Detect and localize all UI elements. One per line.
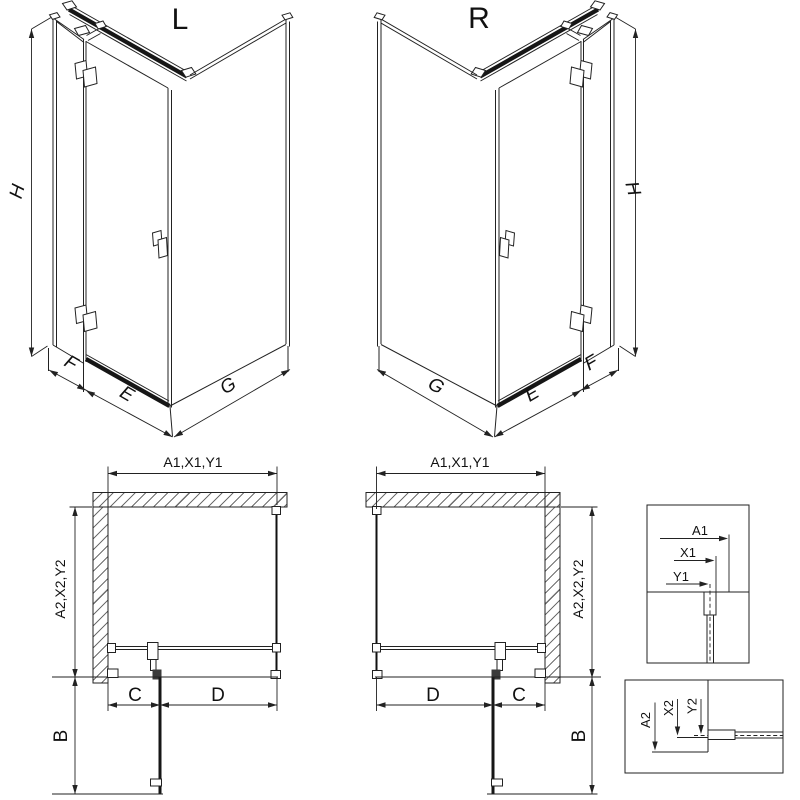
detail-y1-label: Y1	[673, 569, 689, 584]
plan-view-right: A1,X1,Y1 A2,X2,Y2 D C B	[366, 454, 601, 794]
plan-view-left: A1,X1,Y1 A2,X2,Y2 C D B	[51, 454, 287, 794]
dim-label-h-left: H	[6, 182, 30, 201]
iso-right-title: R	[468, 2, 490, 35]
detail-a1-label: A1	[692, 523, 708, 538]
plan-right-b-label: B	[569, 730, 590, 743]
plan-right-width-label: A1,X1,Y1	[430, 454, 489, 470]
plan-left-b-label: B	[51, 730, 72, 743]
technical-drawing-svg: L H F E G R	[0, 0, 800, 800]
dim-label-e-right: E	[522, 382, 544, 407]
iso-view-right: R H F E G	[374, 1, 644, 440]
iso-left-title: L	[172, 3, 189, 36]
detail-a2-label: A2	[638, 712, 653, 728]
plan-left-depth-label: A2,X2,Y2	[52, 559, 68, 618]
dim-label-e-left: E	[116, 382, 138, 407]
iso-view-left: L H F E G	[6, 1, 293, 440]
detail-view-bottom: A2 X2 Y2	[625, 680, 783, 773]
plan-left-geometry	[52, 493, 287, 795]
dim-label-h-right: H	[620, 179, 644, 198]
dim-label-f-left: F	[60, 351, 82, 376]
detail-y2-label: Y2	[685, 698, 700, 714]
plan-right-geometry	[366, 493, 601, 795]
plan-right-c-label: C	[512, 685, 526, 706]
shower-enclosure-diagram: L H F E G R	[0, 0, 800, 800]
iso-right-geometry	[374, 1, 618, 437]
dim-label-g-left: G	[217, 373, 240, 399]
plan-left-d-label: D	[211, 685, 225, 706]
plan-left-width-label: A1,X1,Y1	[163, 454, 222, 470]
plan-left-c-label: C	[128, 685, 142, 706]
plan-right-d-label: D	[426, 685, 440, 706]
plan-right-depth-label: A2,X2,Y2	[570, 559, 586, 618]
detail-x2-label: X2	[661, 700, 676, 716]
detail-x1-label: X1	[680, 545, 696, 560]
detail-view-top: A1 X1 Y1	[647, 505, 749, 663]
iso-left-geometry	[49, 1, 293, 437]
